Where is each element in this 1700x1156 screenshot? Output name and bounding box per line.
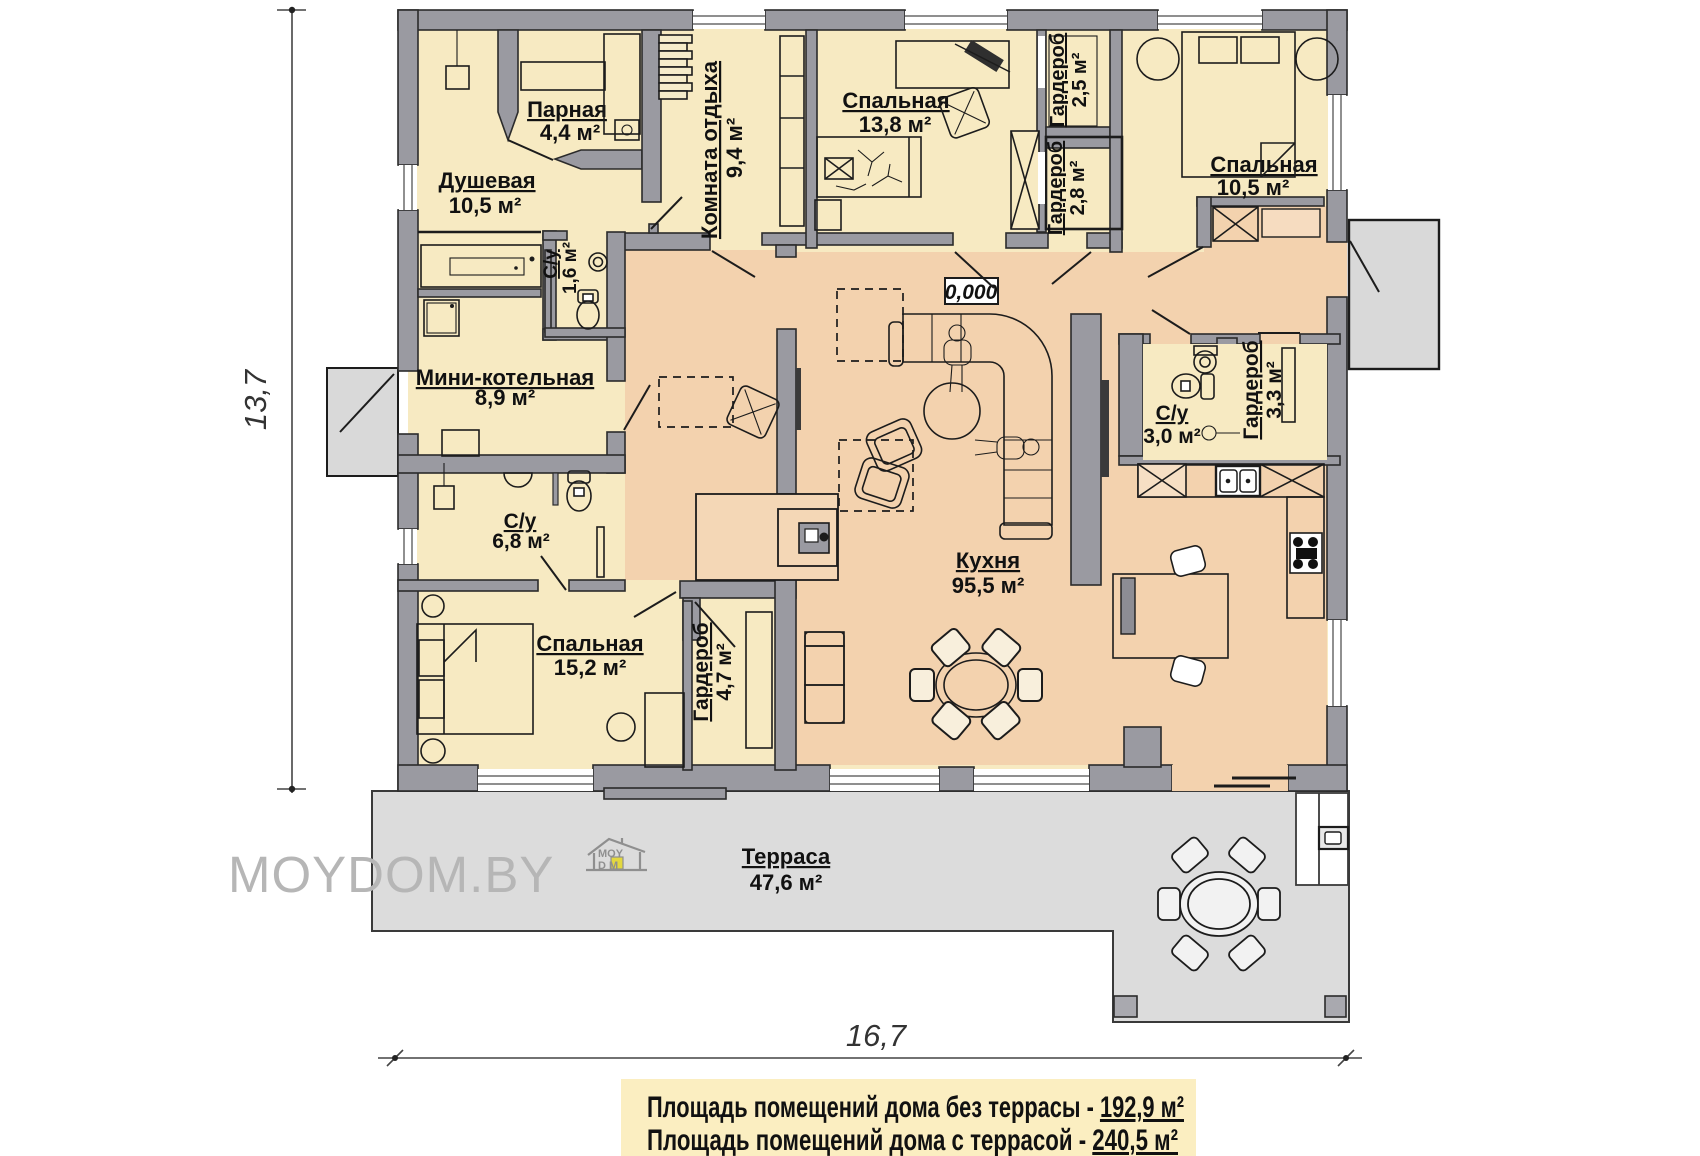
svg-text:Парная: Парная [527, 97, 607, 122]
svg-text:15,2 м²: 15,2 м² [554, 655, 627, 680]
svg-text:Гардероб: Гардероб [1047, 33, 1069, 128]
svg-text:Спальная: Спальная [842, 88, 949, 113]
svg-text:13,8 м²: 13,8 м² [859, 112, 932, 137]
svg-text:13,7: 13,7 [238, 368, 273, 430]
svg-text:95,5 м²: 95,5 м² [952, 573, 1025, 598]
svg-text:Гардероб: Гардероб [1045, 141, 1067, 236]
svg-text:MOY: MOY [598, 848, 624, 860]
svg-text:С/у: С/у [1156, 402, 1189, 425]
svg-text:10,5 м²: 10,5 м² [449, 193, 522, 218]
svg-text:Гардероб: Гардероб [1240, 340, 1263, 439]
svg-text:Гардероб: Гардероб [690, 622, 713, 721]
svg-text:2,8 м²: 2,8 м² [1067, 160, 1089, 215]
svg-text:Кухня: Кухня [956, 548, 1020, 573]
svg-text:4,4 м²: 4,4 м² [540, 120, 600, 145]
svg-text:MOYDOM.BY: MOYDOM.BY [228, 846, 554, 903]
svg-text:4,7 м²: 4,7 м² [713, 643, 736, 701]
svg-text:2,5 м²: 2,5 м² [1069, 52, 1091, 107]
svg-text:1,6 м²: 1,6 м² [560, 242, 581, 294]
svg-text:16,7: 16,7 [846, 1018, 908, 1053]
svg-text:10,5 м²: 10,5 м² [1217, 175, 1290, 200]
svg-text:Терраса: Терраса [742, 844, 831, 869]
svg-text:6,8 м²: 6,8 м² [492, 530, 550, 553]
svg-text:9,4 м²: 9,4 м² [722, 118, 747, 178]
svg-text:47,6 м²: 47,6 м² [750, 870, 823, 895]
svg-text:3,0 м²: 3,0 м² [1143, 425, 1201, 448]
svg-text:Спальная: Спальная [536, 631, 643, 656]
svg-text:Душевая: Душевая [438, 168, 535, 193]
svg-text:Площадь помещений дома с терра: Площадь помещений дома с террасой - 240,… [647, 1124, 1178, 1156]
svg-text:8,9 м²: 8,9 м² [475, 385, 535, 410]
svg-text:С/у: С/у [541, 249, 562, 279]
svg-text:Комната отдыха: Комната отдыха [697, 60, 722, 239]
svg-text:Площадь помещений дома без тер: Площадь помещений дома без террасы - 192… [647, 1091, 1184, 1124]
svg-text:D M: D M [598, 860, 618, 872]
